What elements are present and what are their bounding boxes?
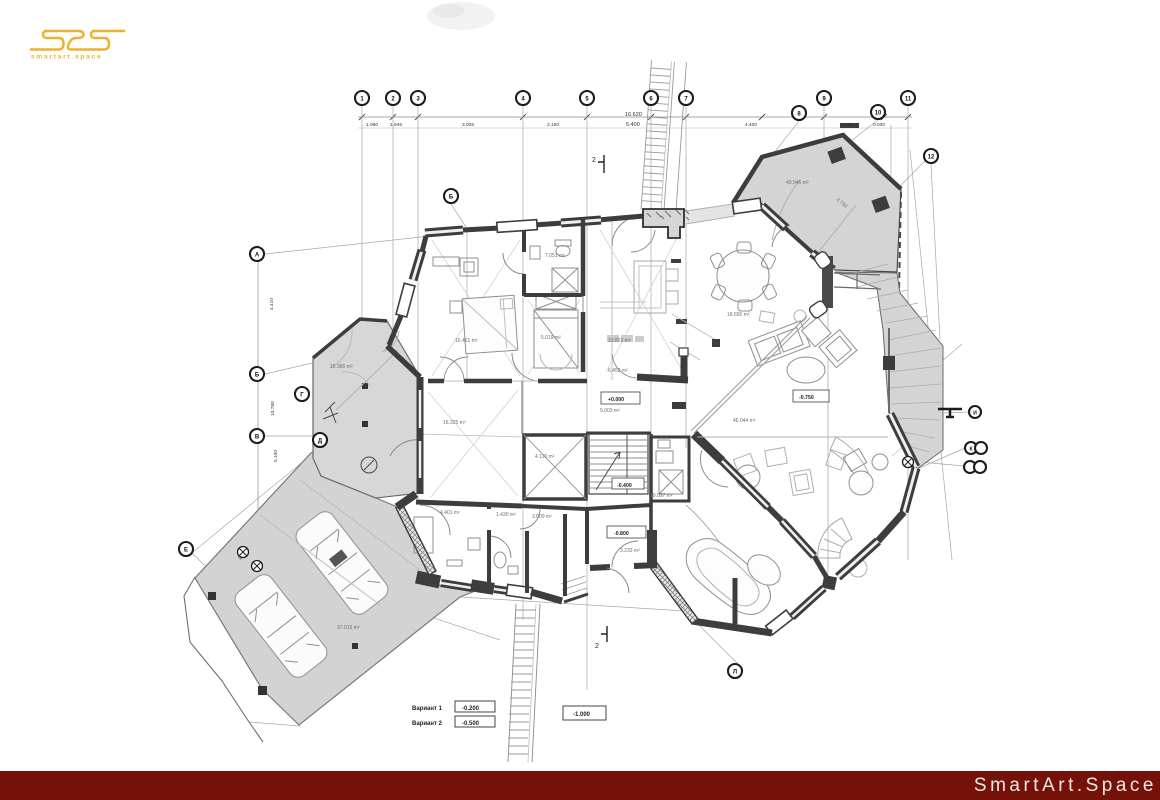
svg-text:3.005: 3.005 bbox=[462, 122, 474, 128]
svg-text:16.325 m²: 16.325 m² bbox=[443, 420, 466, 426]
svg-text:2: 2 bbox=[592, 157, 596, 164]
svg-text:Г: Г bbox=[300, 393, 304, 399]
svg-text:-0.400: -0.400 bbox=[617, 483, 632, 489]
svg-text:-1.000: -1.000 bbox=[573, 712, 591, 718]
svg-text:12: 12 bbox=[928, 155, 935, 161]
svg-text:1.945: 1.945 bbox=[390, 122, 402, 128]
svg-text:-0.800: -0.800 bbox=[614, 531, 629, 537]
svg-text:16.620: 16.620 bbox=[625, 112, 642, 118]
svg-text:40.546 m²: 40.546 m² bbox=[786, 180, 809, 186]
svg-text:4.410: 4.410 bbox=[269, 298, 275, 310]
svg-text:4.401 m²: 4.401 m² bbox=[440, 510, 460, 516]
svg-text:4.400: 4.400 bbox=[745, 122, 757, 128]
svg-text:+0.000: +0.000 bbox=[608, 397, 624, 403]
svg-text:И: И bbox=[973, 411, 977, 417]
svg-text:10.097 m²: 10.097 m² bbox=[650, 493, 673, 499]
svg-text:В: В bbox=[255, 435, 260, 441]
svg-text:5.019 m²: 5.019 m² bbox=[541, 335, 561, 341]
svg-text:Б: Б bbox=[449, 195, 454, 201]
svg-text:2: 2 bbox=[595, 643, 599, 650]
svg-text:Е: Е bbox=[184, 548, 188, 554]
svg-text:1.430 m²: 1.430 m² bbox=[496, 512, 516, 518]
svg-text:3.600 m²: 3.600 m² bbox=[532, 514, 552, 520]
svg-text:Д: Д bbox=[318, 439, 323, 445]
svg-text:10.780: 10.780 bbox=[270, 401, 276, 416]
svg-text:15.366 m²: 15.366 m² bbox=[330, 364, 353, 370]
svg-text:Вариант 2: Вариант 2 bbox=[412, 721, 443, 727]
svg-text:11: 11 bbox=[905, 97, 912, 103]
svg-text:2.150: 2.150 bbox=[547, 122, 559, 128]
svg-text:4.110 m²: 4.110 m² bbox=[535, 454, 555, 460]
svg-text:-0.500: -0.500 bbox=[462, 721, 480, 727]
svg-text:smartart.space: smartart.space bbox=[31, 54, 102, 61]
svg-text:5.100: 5.100 bbox=[273, 450, 279, 462]
svg-text:0.030: 0.030 bbox=[873, 122, 885, 128]
svg-text:-0.200: -0.200 bbox=[462, 706, 480, 712]
svg-text:16.461 m²: 16.461 m² bbox=[455, 338, 478, 344]
svg-text:37.016 m²: 37.016 m² bbox=[337, 625, 360, 631]
svg-text:5.003 m²: 5.003 m² bbox=[600, 408, 620, 414]
svg-text:46.044 m²: 46.044 m² bbox=[733, 418, 756, 424]
svg-text:Л: Л bbox=[733, 670, 737, 676]
svg-text:А: А bbox=[255, 253, 260, 259]
svg-text:7.051 m²: 7.051 m² bbox=[545, 253, 565, 259]
svg-text:5.400: 5.400 bbox=[626, 122, 640, 128]
svg-text:2.100: 2.100 bbox=[840, 122, 852, 128]
svg-text:1.080: 1.080 bbox=[366, 122, 378, 128]
svg-text:6.452 m²: 6.452 m² bbox=[608, 368, 628, 374]
svg-text:Б: Б bbox=[255, 373, 260, 379]
svg-text:13.822 m²: 13.822 m² bbox=[608, 338, 631, 344]
svg-text:18.650 m²: 18.650 m² bbox=[727, 312, 750, 318]
svg-text:10: 10 bbox=[875, 111, 882, 117]
svg-text:Вариант 1: Вариант 1 bbox=[412, 706, 443, 712]
svg-text:-0.750: -0.750 bbox=[799, 395, 814, 401]
svg-text:3.233 m²: 3.233 m² bbox=[620, 548, 640, 554]
